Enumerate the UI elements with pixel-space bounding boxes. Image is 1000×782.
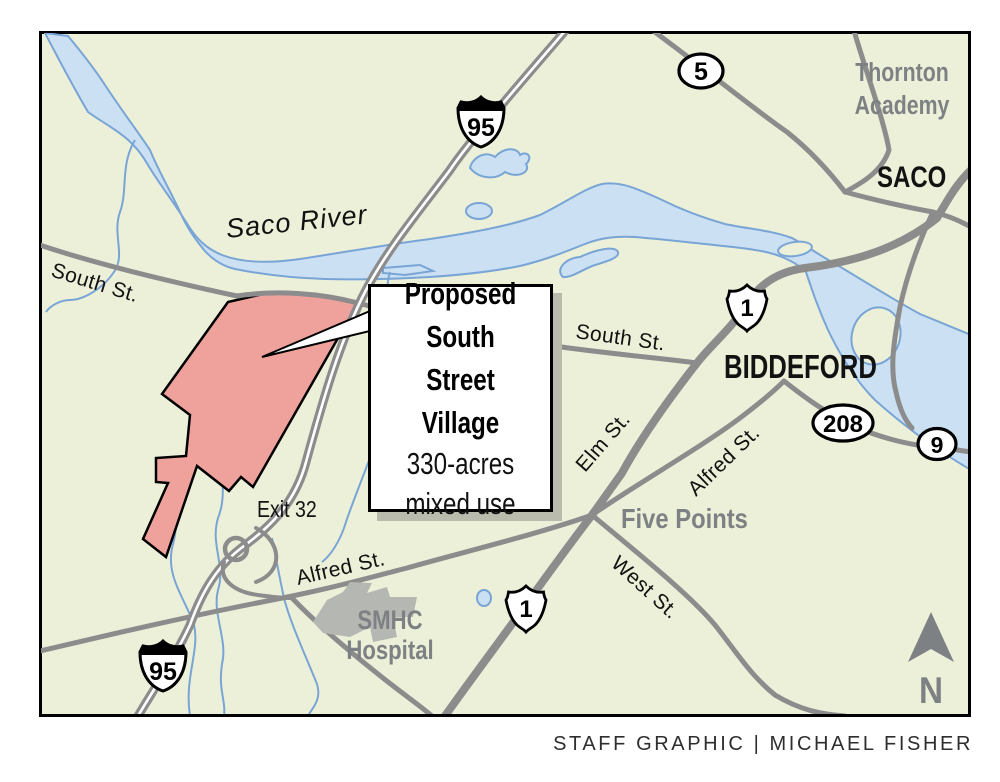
callout-box: Proposed South Street Village 330-acres … <box>368 284 553 512</box>
route-5-shield: 5 <box>679 54 723 88</box>
credit-line: STAFF GRAPHIC | MICHAEL FISHER <box>553 733 973 755</box>
smhc-hospital-label: SMHC Hospital <box>346 606 433 666</box>
pond <box>466 203 492 219</box>
map-graphic: 95 95 1 1 5 208 9 Saco River South St. S… <box>0 0 1000 782</box>
callout-title-line3: Village <box>391 401 531 444</box>
thornton-academy-line1: Thornton <box>855 58 948 88</box>
exit-32-label: Exit 32 <box>257 497 317 523</box>
route-9-number: 9 <box>931 432 944 458</box>
biddeford-label: BIDDEFORD <box>724 349 877 386</box>
route-9-shield: 9 <box>918 429 956 460</box>
pond <box>477 590 491 606</box>
callout-subtitle-line2: mixed use <box>391 484 531 524</box>
interstate-95-number: 95 <box>467 114 495 142</box>
route-208-shield: 208 <box>813 405 873 441</box>
route-208-number: 208 <box>823 411 863 438</box>
smhc-line1: SMHC <box>357 606 422 636</box>
north-arrow-n: N <box>919 670 943 711</box>
thornton-academy-line2: Academy <box>855 91 950 121</box>
five-points-label: Five Points <box>621 502 748 534</box>
us-1-number: 1 <box>519 596 532 623</box>
callout-text: Proposed South Street Village 330-acres … <box>391 272 531 524</box>
callout-subtitle-line1: 330-acres <box>391 444 531 484</box>
interstate-95-number: 95 <box>149 658 177 686</box>
route-5-number: 5 <box>694 58 708 86</box>
saco-label: SACO <box>877 159 946 193</box>
us-1-number: 1 <box>740 295 753 322</box>
smhc-line2: Hospital <box>346 636 433 666</box>
callout-title-line2: South Street <box>391 315 531 401</box>
callout-title-line1: Proposed <box>391 272 531 315</box>
